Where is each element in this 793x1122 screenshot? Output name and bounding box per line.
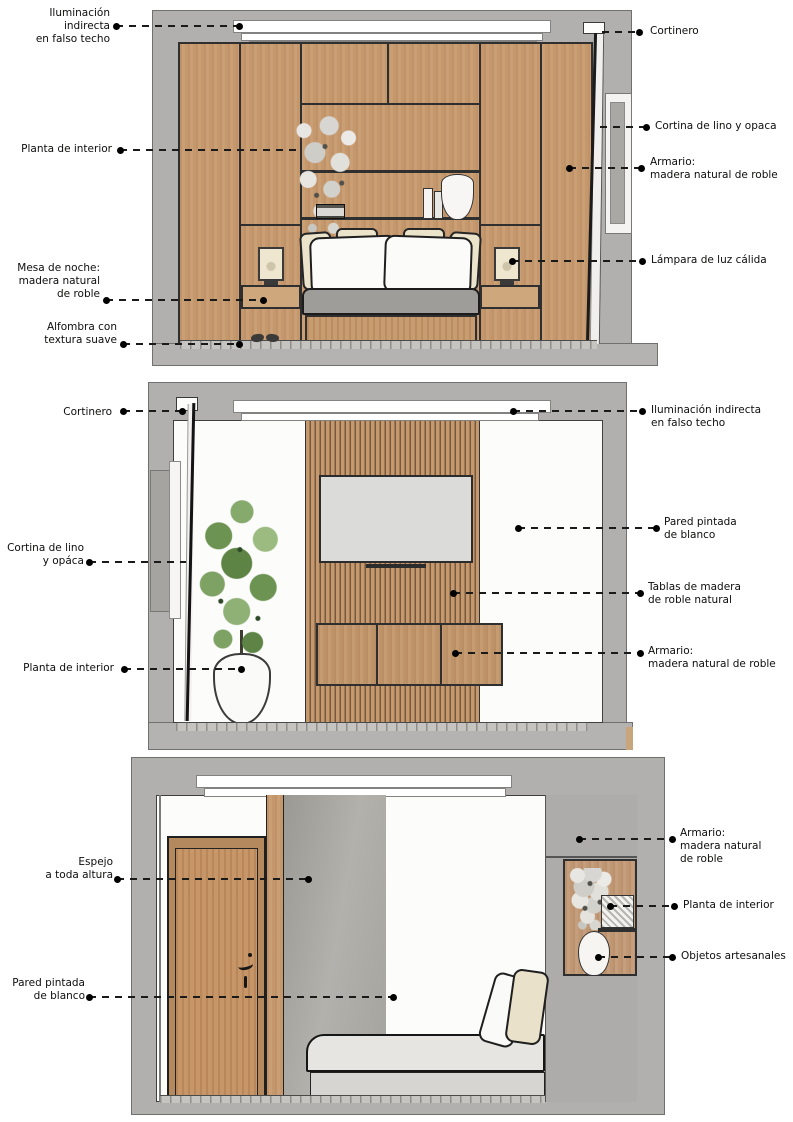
v2-potted-plant-foliage <box>189 498 295 670</box>
leader-line <box>117 878 308 880</box>
leader-dot <box>238 666 245 673</box>
label-wardrobe-v1: Armario: madera natural de roble <box>650 156 778 182</box>
leader-line <box>120 149 300 151</box>
leader-dot <box>671 903 678 910</box>
v2-floor-edge <box>626 727 633 750</box>
v3-rug <box>160 1095 545 1103</box>
label-indoor-plant-v1: Planta de interior <box>21 143 112 156</box>
v3-ceiling-light-bar <box>196 775 512 788</box>
v2-tv-shelf <box>366 564 426 568</box>
leader-line <box>89 561 186 563</box>
v1-side-line <box>481 224 541 226</box>
v2-tv-screen <box>319 475 473 563</box>
label-wardrobe-v3: Armario: madera natural de roble <box>680 827 761 866</box>
label-artisan-objects-v3: Objetos artesanales <box>681 950 786 963</box>
v3-plant-basket <box>601 895 634 928</box>
leader-dot <box>86 559 93 566</box>
leader-dot <box>452 650 459 657</box>
leader-dot <box>236 341 243 348</box>
leader-line <box>579 838 672 840</box>
leader-dot <box>114 876 121 883</box>
label-white-wall-v3: Pared pintada de blanco <box>12 977 85 1003</box>
leader-line <box>89 996 393 998</box>
leader-dot <box>510 408 517 415</box>
v1-nightstand-left <box>241 285 301 309</box>
leader-dot <box>639 408 646 415</box>
leader-dot <box>117 147 124 154</box>
leader-line <box>453 592 640 594</box>
leader-dot <box>86 994 93 1001</box>
leader-dot <box>515 525 522 532</box>
bedroom-elevations-diagram: Iluminación indirecta en falso techo Pla… <box>0 0 793 1122</box>
v3-door-handle-dot <box>248 953 252 957</box>
label-linen-curtain-v1: Cortina de lino y opaca <box>655 120 777 133</box>
leader-dot <box>669 836 676 843</box>
leader-dot <box>236 23 243 30</box>
leader-line <box>455 652 640 654</box>
v1-panel-line <box>540 44 542 342</box>
label-linen-curtain-v2: Cortina de lino y opáca <box>7 542 84 568</box>
leader-dot <box>120 408 127 415</box>
leader-dot <box>639 258 646 265</box>
v1-hanging-plant <box>283 116 367 238</box>
leader-line <box>569 167 641 169</box>
leader-dot <box>576 836 583 843</box>
leader-dot <box>450 590 457 597</box>
v3-door-keyhole <box>244 976 247 988</box>
label-indirect-lighting-v2: Iluminación indirecta en falso techo <box>651 404 761 430</box>
leader-line <box>116 25 239 27</box>
v1-ceiling-light-bar <box>233 20 551 33</box>
leader-line <box>598 956 672 958</box>
v2-window-frame <box>169 461 181 619</box>
leader-dot <box>638 165 645 172</box>
label-full-mirror-v3: Espejo a toda altura <box>45 856 113 882</box>
leader-dot <box>509 258 516 265</box>
leader-line <box>512 260 642 262</box>
label-indoor-plant-v2: Planta de interior <box>23 662 114 675</box>
leader-dot <box>637 650 644 657</box>
leader-line <box>600 126 646 128</box>
leader-dot <box>103 297 110 304</box>
v2-ceiling-light-bar <box>233 400 551 413</box>
leader-line <box>124 668 241 670</box>
label-indoor-plant-v3: Planta de interior <box>683 899 774 912</box>
v2-floating-cabinet <box>316 623 503 686</box>
leader-dot <box>121 666 128 673</box>
leader-line <box>518 527 656 529</box>
v3-door <box>175 848 258 1097</box>
label-white-wall-v2: Pared pintada de blanco <box>664 516 737 542</box>
v1-niche-top-line <box>302 103 480 105</box>
v3-wall-edge-line <box>159 795 161 1102</box>
leader-dot <box>636 29 643 36</box>
label-warm-lamp-v1: Lámpara de luz cálida <box>651 254 767 267</box>
v1-alarm-clock <box>316 204 345 219</box>
v1-pillow-white-right <box>383 234 473 295</box>
v2-cabinet-division <box>440 624 442 685</box>
v1-ceiling-light-bar2 <box>241 33 543 41</box>
v2-ceiling-light-bar2 <box>241 413 539 421</box>
v1-book <box>423 188 433 219</box>
leader-line <box>513 410 642 412</box>
leader-line <box>602 31 639 33</box>
v3-wardrobe-line <box>545 856 637 858</box>
leader-dot <box>113 23 120 30</box>
leader-dot <box>669 954 676 961</box>
leader-dot <box>595 954 602 961</box>
v3-wood-column <box>266 795 284 1102</box>
leader-dot <box>607 903 614 910</box>
leader-dot <box>637 590 644 597</box>
label-curtain-rod-v1: Cortinero <box>650 25 699 38</box>
leader-dot <box>179 408 186 415</box>
leader-dot <box>305 876 312 883</box>
leader-line <box>123 410 182 412</box>
label-indirect-lighting-v1: Iluminación indirecta en falso techo <box>0 7 110 46</box>
v1-rug <box>180 340 597 349</box>
leader-dot <box>653 525 660 532</box>
label-oak-boards-v2: Tablas de madera de roble natural <box>648 581 741 607</box>
v1-panel-line <box>387 44 389 104</box>
v1-mattress <box>302 288 480 315</box>
v2-rug <box>176 722 588 731</box>
leader-dot <box>390 994 397 1001</box>
leader-line <box>610 905 674 907</box>
label-nightstand-v1: Mesa de noche: madera natural de roble <box>17 262 100 301</box>
v1-lamp-left <box>258 247 284 281</box>
v2-cabinet-division <box>376 624 378 685</box>
v3-artisan-vase <box>578 931 610 976</box>
v3-niche-shelf <box>598 928 637 932</box>
label-soft-rug-v1: Alfombra con textura suave <box>44 321 117 347</box>
leader-dot <box>260 297 267 304</box>
label-wardrobe-v2: Armario: madera natural de roble <box>648 645 776 671</box>
v1-window-glass <box>610 102 625 224</box>
leader-line <box>106 299 263 301</box>
leader-dot <box>566 165 573 172</box>
v1-lamp-right <box>494 247 520 281</box>
v1-nightstand-right <box>480 285 540 309</box>
leader-line <box>123 343 239 345</box>
leader-dot <box>120 341 127 348</box>
label-curtain-rod-v2: Cortinero <box>63 406 112 419</box>
leader-dot <box>643 124 650 131</box>
